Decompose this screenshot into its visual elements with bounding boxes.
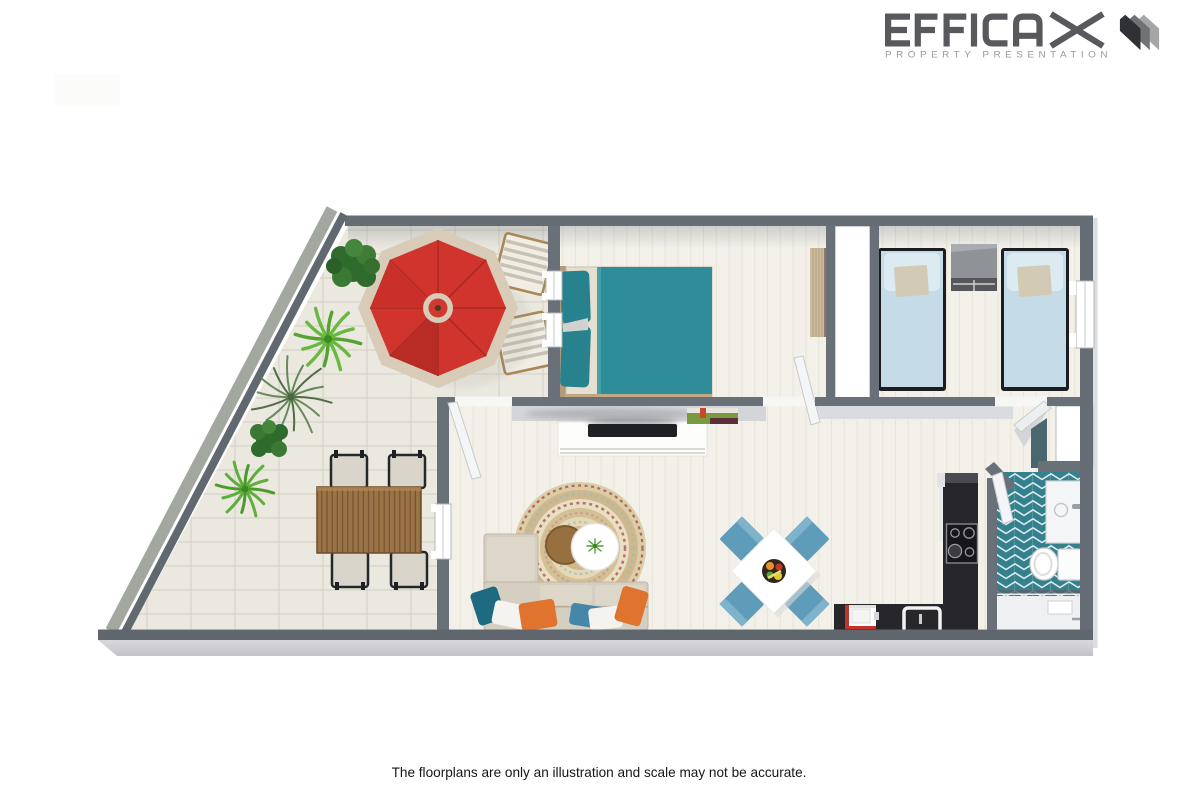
svg-text:The floorplans are only an ill: The floorplans are only an illustration … (392, 765, 807, 780)
svg-text:PROPERTY PRESENTATION: PROPERTY PRESENTATION (885, 50, 1112, 60)
